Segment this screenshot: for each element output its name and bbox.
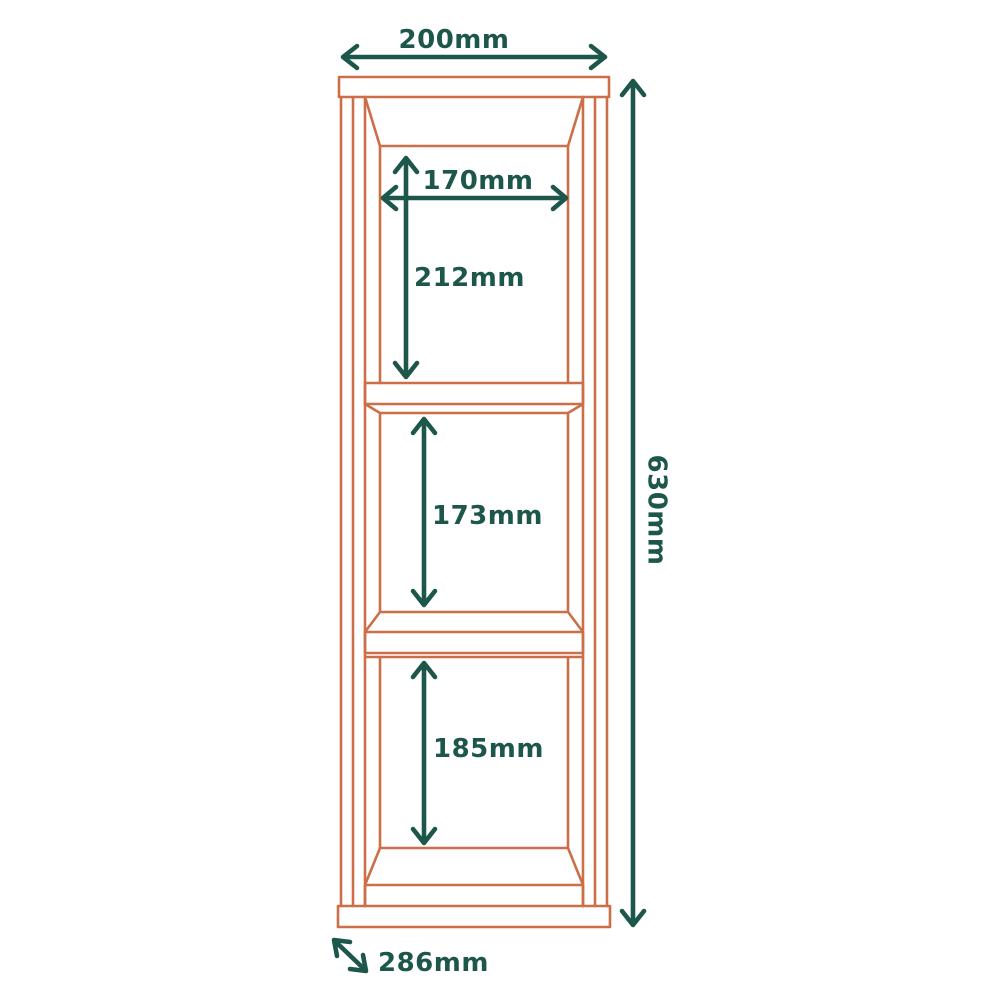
compartment-2-height-label: 173mm xyxy=(432,501,543,531)
compartment-3-floor xyxy=(365,848,583,906)
shelf-1-underside xyxy=(365,404,583,413)
inner-width-label: 170mm xyxy=(423,166,534,196)
shelf-2-front xyxy=(365,632,583,653)
dimension-annotations: 200mm 630mm 170mm 212mm xyxy=(334,25,672,978)
inner-width-dimension: 170mm xyxy=(383,166,566,209)
depth-label: 286mm xyxy=(378,948,489,978)
right-side-panel xyxy=(583,97,607,906)
compartment-3-height-dimension: 185mm xyxy=(413,663,544,843)
top-width-label: 200mm xyxy=(399,25,510,55)
shelf-2-top-surface xyxy=(365,612,583,632)
compartment-2-height-dimension: 173mm xyxy=(413,419,543,605)
top-panel xyxy=(339,77,609,97)
shelf-1-front xyxy=(365,383,583,404)
diagram-canvas: 200mm 630mm 170mm 212mm xyxy=(0,0,1000,1000)
compartment-1-ceiling xyxy=(365,97,583,146)
shelving-unit-dimension-diagram: 200mm 630mm 170mm 212mm xyxy=(0,0,1000,1000)
base-panel xyxy=(338,906,610,927)
depth-dimension: 286mm xyxy=(334,940,489,978)
compartment-1-height-label: 212mm xyxy=(414,263,525,293)
total-height-dimension: 630mm xyxy=(622,81,672,925)
left-side-panel xyxy=(341,97,365,906)
compartment-3-height-label: 185mm xyxy=(433,734,544,764)
dimension-line xyxy=(338,944,362,967)
top-width-dimension: 200mm xyxy=(343,25,605,68)
total-height-label: 630mm xyxy=(642,455,672,566)
